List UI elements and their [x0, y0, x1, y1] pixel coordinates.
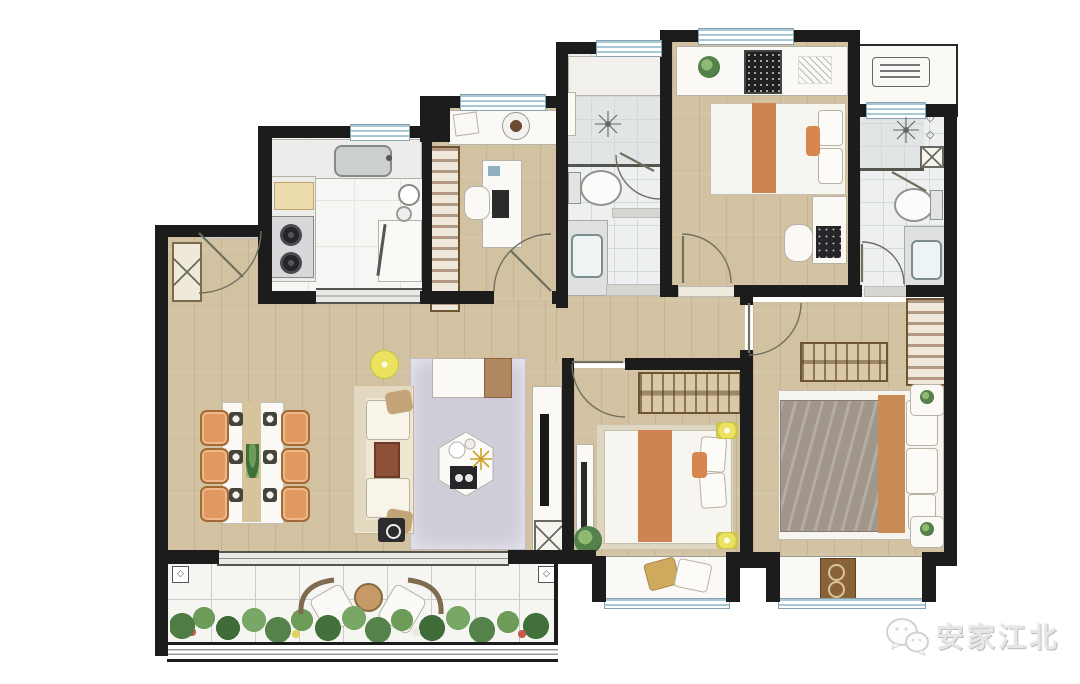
bathroom1-door-leaf [620, 153, 654, 171]
balcony-chair-backs [301, 580, 441, 614]
shower-head-icons [595, 111, 919, 143]
coffee-table-plate [449, 442, 465, 458]
shower-head-icon [904, 128, 909, 133]
gold-flower-decor [470, 448, 492, 470]
balcony-chair-back [301, 580, 334, 614]
gold-flower-decor [470, 448, 492, 470]
door-arcs [199, 153, 926, 417]
study-door-leaf [511, 251, 551, 291]
coffee-table-group [439, 432, 493, 496]
coffee-table-plate [465, 439, 475, 449]
bathroom2-inner-door-leaf [892, 172, 926, 191]
balcony-chair-back [408, 580, 441, 614]
annotations-overlay [0, 0, 1080, 684]
entry-door-leaf [199, 233, 243, 277]
master-door-arc [749, 303, 801, 355]
wechat-logo-icon [884, 615, 930, 657]
tray-dish [455, 474, 463, 482]
watermark-brand-text: 安家江北 [936, 616, 1060, 656]
bedroom2-door-arc [682, 234, 731, 283]
bedroom3-door-arc [572, 364, 625, 417]
shower-head-icon [606, 122, 611, 127]
tray-dish [465, 474, 473, 482]
bathroom2-door-arc [862, 242, 904, 284]
watermark: 安家江北 [884, 604, 1080, 668]
floor-plan-canvas: ◇ ◇ ◇ ◇ [0, 0, 1080, 684]
entry-door-arc [199, 231, 261, 293]
